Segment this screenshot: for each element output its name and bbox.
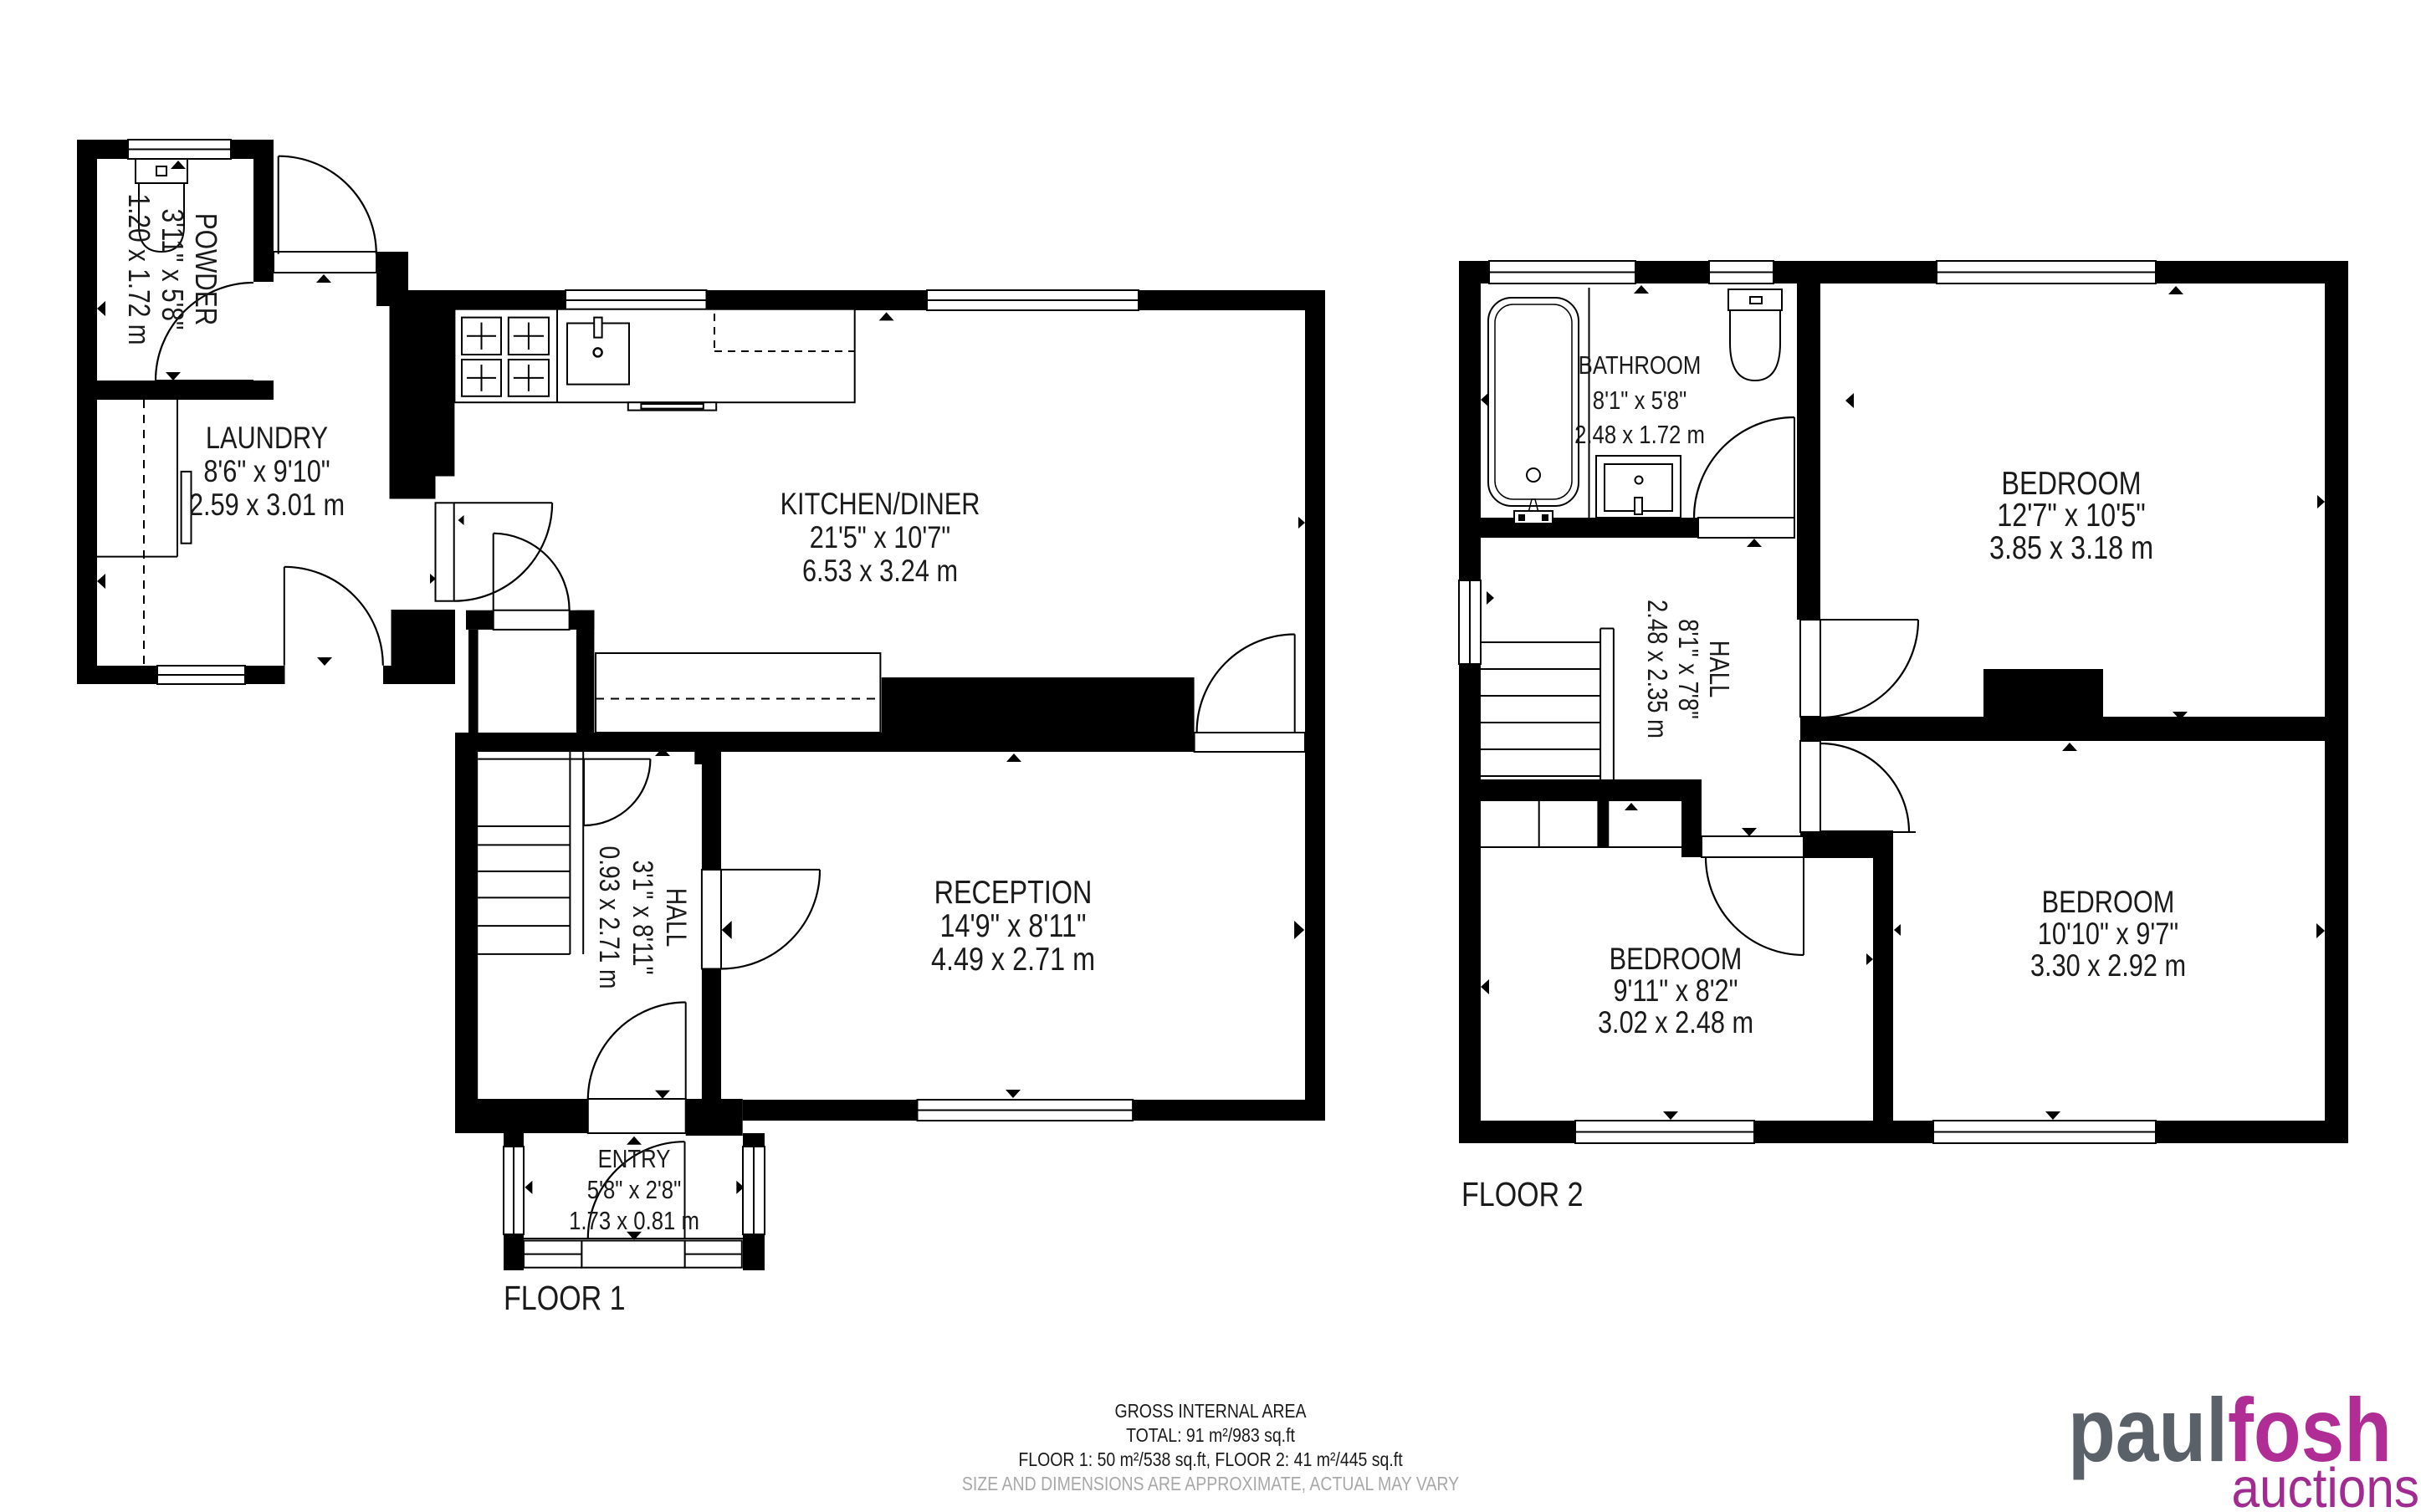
svg-text:POWDER: POWDER [188,213,222,325]
svg-text:HALL: HALL [660,888,692,948]
svg-text:auctions: auctions [2231,1456,2419,1512]
svg-text:FLOOR 2: FLOOR 2 [1461,1175,1584,1213]
svg-text:BEDROOM: BEDROOM [2042,885,2175,919]
svg-text:2.59 x 3.01 m: 2.59 x 3.01 m [189,488,345,522]
svg-text:21'5" x 10'7": 21'5" x 10'7" [810,520,950,554]
svg-text:GROSS INTERNAL AREA: GROSS INTERNAL AREA [1115,1399,1307,1422]
svg-text:2.48 x 2.35 m: 2.48 x 2.35 m [1641,600,1671,738]
svg-text:8'1" x 5'8": 8'1" x 5'8" [1593,386,1687,416]
svg-text:8'6" x 9'10": 8'6" x 9'10" [203,454,330,488]
svg-text:BEDROOM: BEDROOM [1610,942,1743,976]
svg-text:9'11" x 8'2": 9'11" x 8'2" [1613,973,1738,1008]
svg-text:KITCHEN/DINER: KITCHEN/DINER [781,487,980,521]
svg-text:6.53 x 3.24 m: 6.53 x 3.24 m [802,554,958,588]
svg-text:FLOOR 1: FLOOR 1 [504,1279,626,1317]
svg-text:12'7" x 10'5": 12'7" x 10'5" [1997,497,2145,534]
svg-text:BATHROOM: BATHROOM [1579,351,1702,381]
svg-text:LAUNDRY: LAUNDRY [206,421,328,455]
svg-text:SIZE AND DIMENSIONS ARE APPROX: SIZE AND DIMENSIONS ARE APPROXIMATE, ACT… [962,1472,1459,1494]
svg-text:RECEPTION: RECEPTION [934,874,1093,911]
svg-text:3.85 x 3.18 m: 3.85 x 3.18 m [1989,529,2153,566]
svg-text:3.30 x 2.92 m: 3.30 x 2.92 m [2030,948,2186,983]
svg-text:5'8" x 2'8": 5'8" x 2'8" [587,1176,681,1205]
svg-text:3'11" x 5'8": 3'11" x 5'8" [155,208,188,329]
svg-text:1.73 x 0.81 m: 1.73 x 0.81 m [569,1207,699,1236]
svg-text:4.49 x 2.71 m: 4.49 x 2.71 m [931,941,1095,978]
svg-text:0.93 x 2.71 m: 0.93 x 2.71 m [593,846,625,989]
svg-text:ENTRY: ENTRY [598,1145,671,1174]
svg-text:8'1" x 7'8": 8'1" x 7'8" [1672,619,1702,719]
svg-text:1.20 x 1.72 m: 1.20 x 1.72 m [121,193,155,345]
svg-text:14'9" x 8'11": 14'9" x 8'11" [939,907,1086,944]
svg-text:TOTAL: 91 m²/983 sq.ft: TOTAL: 91 m²/983 sq.ft [1126,1423,1295,1446]
svg-text:BEDROOM: BEDROOM [2001,465,2141,502]
svg-text:10'10" x 9'7": 10'10" x 9'7" [2038,917,2178,951]
svg-text:3'1" x 8'11": 3'1" x 8'11" [627,861,658,975]
svg-text:HALL: HALL [1703,641,1733,697]
svg-text:3.02 x 2.48 m: 3.02 x 2.48 m [1598,1005,1753,1039]
svg-text:FLOOR 1: 50 m²/538 sq.ft, FLOO: FLOOR 1: 50 m²/538 sq.ft, FLOOR 2: 41 m²… [1018,1448,1402,1470]
svg-text:2.48 x 1.72 m: 2.48 x 1.72 m [1574,421,1705,450]
